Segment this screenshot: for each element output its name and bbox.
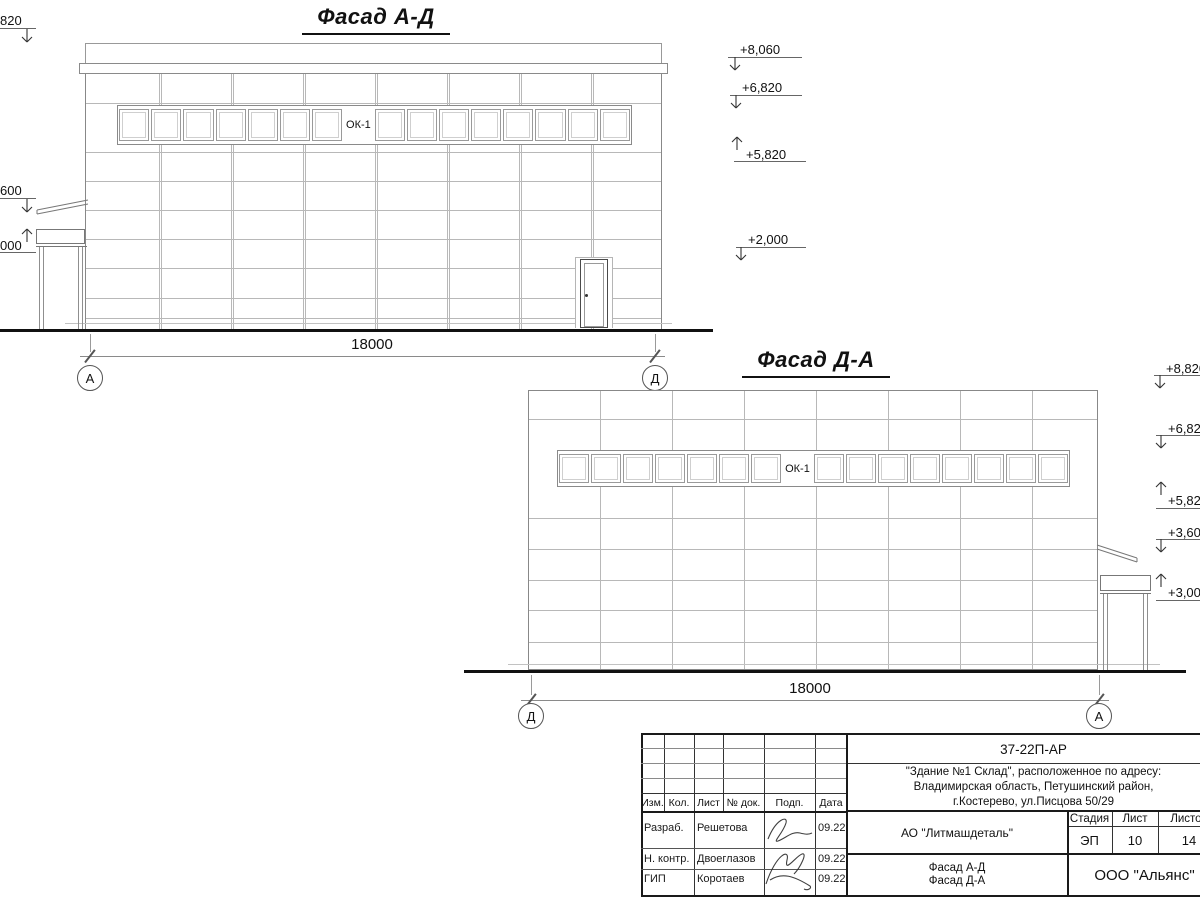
facade-wall (528, 390, 1098, 670)
grid-line (529, 518, 1097, 519)
window-pane (503, 109, 533, 141)
project-address-line: г.Костерево, ул.Писцова 50/29 (953, 795, 1114, 810)
annex-wall-line (1107, 594, 1108, 670)
window-pane (535, 109, 565, 141)
window-band: ОК-1 (557, 450, 1070, 487)
door-handle-icon (585, 294, 588, 297)
titleblock-border (641, 733, 643, 897)
grid-line (86, 210, 661, 211)
annex-roof-slab (1100, 575, 1151, 591)
wall-column-line (1032, 391, 1033, 669)
sheets-value: 14 (1158, 828, 1200, 853)
sig-role: ГИП (644, 873, 666, 885)
sheet-value: 10 (1112, 828, 1158, 853)
grid-line (529, 610, 1097, 611)
elevation-shelf (734, 161, 806, 162)
window-band-label: ОК-1 (344, 109, 372, 141)
axis-marker: Д (518, 703, 544, 729)
window-pane (1006, 454, 1036, 483)
grid-line (86, 181, 661, 182)
sig-date: 09.22 (818, 873, 846, 885)
sheets-label: Листов (1158, 812, 1200, 826)
dimension-text: 18000 (312, 336, 432, 353)
window-pane (439, 109, 469, 141)
elevation-mark-text: +8,820 (1166, 361, 1200, 376)
stage-value: ЭП (1067, 828, 1112, 853)
signature-scribble (760, 846, 816, 894)
wall-column-line (960, 391, 961, 669)
annex-wall-line (78, 247, 79, 329)
elevation-mark-text: +3,000 (1168, 585, 1200, 600)
titleblock-line (641, 763, 846, 764)
extension-line (531, 675, 532, 695)
titleblock-line (641, 793, 846, 794)
window-pane (119, 109, 149, 141)
window-pane (312, 109, 342, 141)
elevation-mark-text: 000 (0, 238, 22, 253)
window-pane (846, 454, 876, 483)
sheet-content-line: Фасад А-Д (929, 862, 985, 875)
grid-line (529, 549, 1097, 550)
elevation-arrow-down-icon (1151, 375, 1169, 390)
window-pane (471, 109, 501, 141)
sig-role: Разраб. (644, 822, 684, 834)
col-header-izm: Изм. (641, 795, 664, 810)
elevation-arrow-down-icon (18, 29, 36, 44)
elevation-arrow-down-icon (732, 247, 750, 262)
col-header-ndok: № док. (723, 795, 764, 810)
window-pane (719, 454, 749, 483)
window-pane (878, 454, 908, 483)
annex-wall-line (1143, 594, 1144, 670)
axis-marker: Д (642, 365, 668, 391)
window-band: ОК-1 (117, 105, 632, 145)
elevation-shelf (1156, 508, 1200, 509)
elevation-mark-text: +2,000 (748, 232, 788, 247)
project-address-line: Владимирская область, Петушинский район, (914, 780, 1154, 795)
sig-name: Решетова (697, 822, 747, 834)
ground-line (0, 329, 713, 332)
window-pane (375, 109, 405, 141)
col-header-data: Дата (815, 795, 847, 810)
annex-wall-line (1103, 594, 1104, 670)
window-pane (942, 454, 972, 483)
parapet (85, 43, 662, 64)
grid-line (86, 152, 661, 153)
annex-wall-line (39, 247, 40, 329)
window-pane (600, 109, 630, 141)
titleblock-line (641, 748, 846, 749)
canopy (1094, 542, 1140, 566)
elevation-arrow-up-icon (728, 135, 746, 150)
signature-scribble (762, 813, 814, 847)
window-pane (183, 109, 213, 141)
axis-marker: А (77, 365, 103, 391)
facade-da-title: Фасад Д-А (742, 347, 890, 378)
window-pane (974, 454, 1004, 483)
grid-line (86, 239, 661, 240)
annex-wall-line (43, 247, 44, 329)
extension-line (655, 334, 656, 352)
window-pane (280, 109, 310, 141)
elevation-mark-text: +8,060 (740, 42, 780, 57)
dimension-text: 18000 (750, 680, 870, 697)
company-name: ООО "Альянс" (1069, 855, 1200, 895)
grid-line (529, 580, 1097, 581)
window-pane (151, 109, 181, 141)
titleblock-line (694, 735, 695, 895)
extension-line (90, 334, 91, 352)
elevation-arrow-down-icon (1152, 435, 1170, 450)
elevation-mark-text: +6,820 (742, 80, 782, 95)
window-pane (559, 454, 589, 483)
col-header-kol: Кол. (664, 795, 694, 810)
elevation-shelf (0, 252, 36, 253)
grid-line (529, 642, 1097, 643)
annex-wall-line (82, 247, 83, 329)
wall-column-line (816, 391, 817, 669)
grid-line (86, 103, 661, 104)
wall-column-line (600, 391, 601, 669)
window-pane (1038, 454, 1068, 483)
titleblock-line (1069, 826, 1200, 827)
sheet-content-line: Фасад Д-А (929, 875, 985, 888)
elevation-arrow-down-icon (727, 95, 745, 110)
elevation-mark-text: +5,820 (1168, 493, 1200, 508)
window-pane (655, 454, 685, 483)
annex-wall-line (1147, 594, 1148, 670)
extension-line (1099, 675, 1100, 695)
window-pane (751, 454, 781, 483)
wall-column-line (744, 391, 745, 669)
window-pane (623, 454, 653, 483)
sig-date: 09.22 (818, 822, 846, 834)
dimension-line (521, 700, 1109, 701)
drawing-sheet: Фасад А-Д Фасад Д-А Изм. Кол. Лист № док… (0, 0, 1200, 900)
project-address-line: "Здание №1 Склад", расположенное по адре… (906, 765, 1161, 780)
wall-column-line (672, 391, 673, 669)
doc-number: 37-22П-АР (847, 735, 1200, 763)
col-header-list: Лист (694, 795, 723, 810)
sig-name: Двоеглазов (697, 853, 755, 865)
ground-line (464, 670, 1186, 673)
window-pane (568, 109, 598, 141)
facade-ad-title: Фасад А-Д (302, 4, 450, 35)
elevation-arrow-down-icon (726, 57, 744, 72)
grid-line (529, 419, 1097, 420)
elevation-arrow-down-icon (18, 199, 36, 214)
window-pane (814, 454, 844, 483)
annex-roof-slab (36, 229, 85, 244)
elevation-arrow-down-icon (1152, 539, 1170, 554)
canopy (34, 196, 90, 218)
stage-label: Стадия (1067, 812, 1112, 826)
sig-date: 09.22 (818, 853, 846, 865)
sheet-label: Лист (1112, 812, 1158, 826)
window-pane (591, 454, 621, 483)
elevation-mark-text: 600 (0, 183, 22, 198)
elevation-shelf (1156, 600, 1200, 601)
client-name: АО "Литмашдеталь" (847, 812, 1067, 853)
sig-name: Коротаев (697, 873, 745, 885)
window-band-label: ОК-1 (783, 454, 811, 483)
window-pane (216, 109, 246, 141)
elevation-mark-text: +3,600 (1168, 525, 1200, 540)
fascia-band (79, 63, 668, 74)
plinth-line (508, 664, 1160, 665)
window-pane (687, 454, 717, 483)
dimension-line (80, 356, 665, 357)
col-header-podp: Подп. (764, 795, 815, 810)
wall-column-line (888, 391, 889, 669)
titleblock-line (641, 811, 847, 813)
elevation-mark-text: 820 (0, 13, 22, 28)
window-pane (248, 109, 278, 141)
elevation-mark-text: +5,820 (746, 147, 786, 162)
titleblock-line (848, 763, 1200, 764)
window-pane (407, 109, 437, 141)
elevation-mark-text: +6,820 (1168, 421, 1200, 436)
titleblock-line (641, 778, 846, 779)
titleblock-border (641, 895, 1200, 897)
axis-marker: А (1086, 703, 1112, 729)
sig-role: Н. контр. (644, 853, 689, 865)
window-pane (910, 454, 940, 483)
